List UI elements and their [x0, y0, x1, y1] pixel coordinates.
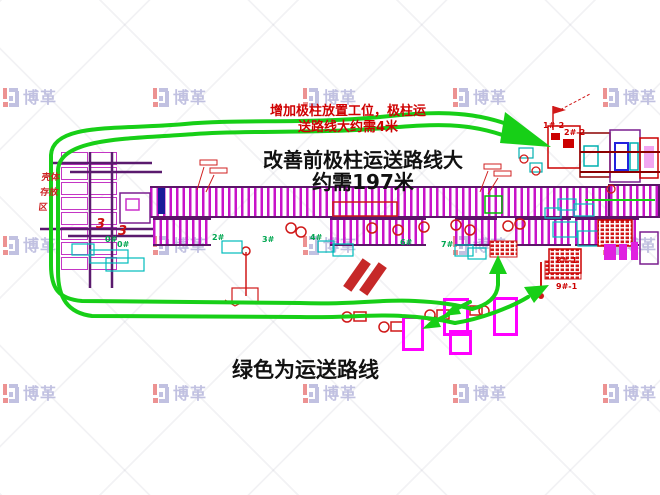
- station-label: 6#: [400, 239, 412, 247]
- factory-layout-diagram: 博革博革博革博革博革博革博革博革博革博革博革博革博革博革博革: [0, 0, 660, 495]
- note-add-line2: 送路线大约需4米: [255, 120, 441, 136]
- diagram-label-layer: 0#0#2#3#4#6#7#1#-22#-28#-19#-133: [0, 0, 660, 495]
- machine-label: 9#-1: [556, 283, 577, 291]
- main-note-line1: 改善前极柱运送路线大: [250, 149, 476, 171]
- station-label: 0#: [105, 236, 117, 244]
- main-note-line2: 约需197米: [250, 171, 476, 193]
- station-label: 7#: [441, 241, 453, 249]
- station-label: 3#: [262, 236, 274, 244]
- station-label: 2#: [212, 234, 224, 242]
- machine-label: 1#-2: [543, 122, 564, 130]
- station-label: 0#: [117, 241, 129, 249]
- station-label: 4#: [310, 234, 322, 242]
- machine-label: 8#-1: [556, 257, 577, 265]
- note-add-station: 增加极柱放置工位，极柱运 送路线大约需4米: [255, 104, 441, 136]
- route-legend-note: 绿色为运送路线: [232, 354, 379, 384]
- note-before-improvement: 改善前极柱运送路线大 约需197米: [250, 149, 476, 193]
- num-label: 3: [118, 225, 127, 238]
- machine-label: 2#-2: [564, 129, 585, 137]
- note-add-line1: 增加极柱放置工位，极柱运: [255, 104, 441, 120]
- num-label: 3: [96, 218, 105, 231]
